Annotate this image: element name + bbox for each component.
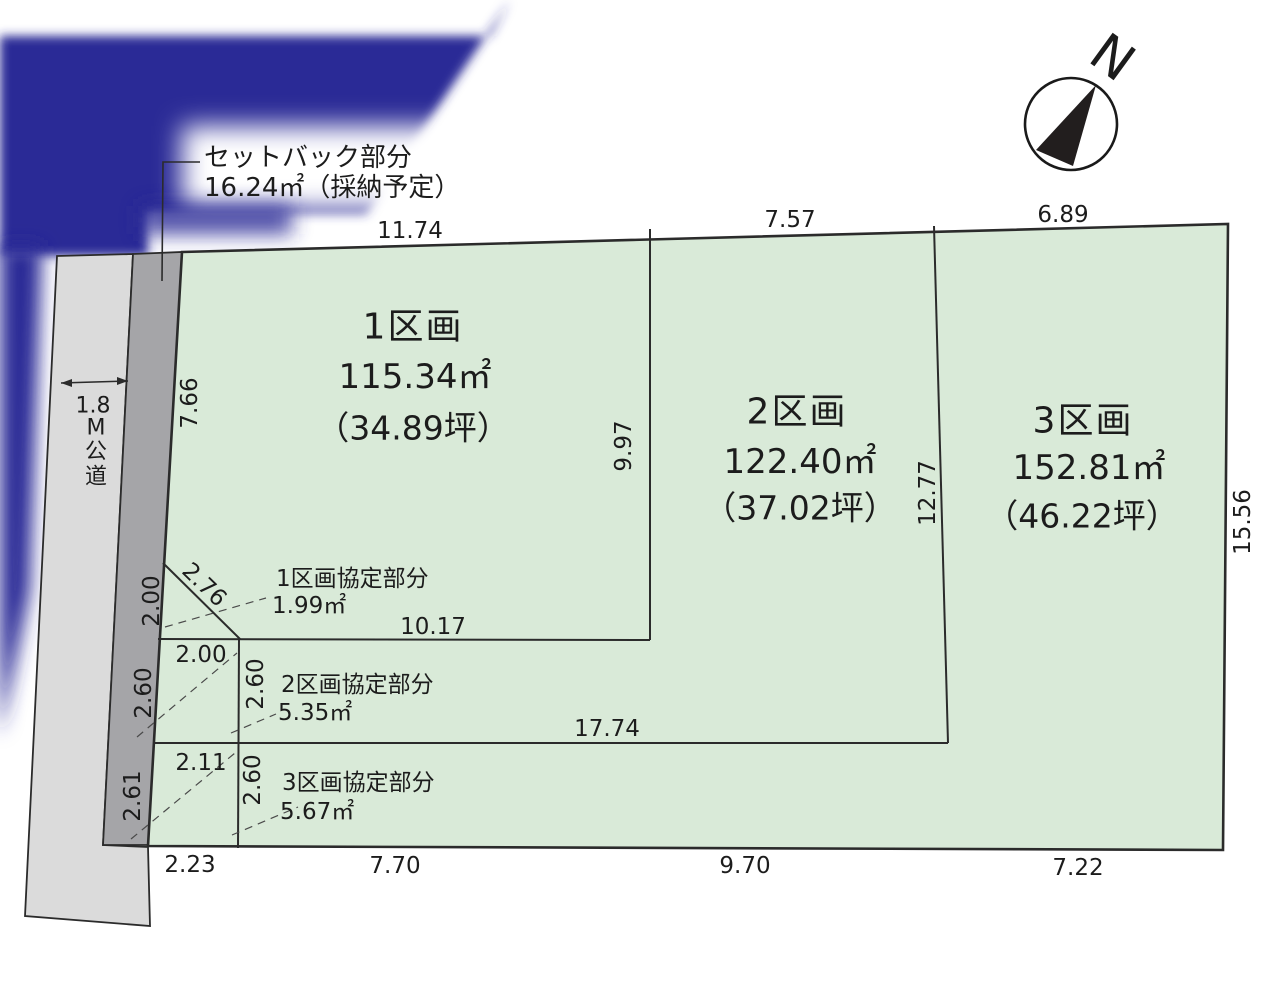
road-name-char-3: 道 [85, 465, 107, 490]
dim-bottom-4: 7.22 [1052, 855, 1103, 881]
road-name-char-1: M [87, 416, 106, 441]
parcel-3-area: 152.81㎡ [1013, 448, 1166, 488]
setback-note-line2: 16.24㎡（採納予定） [204, 173, 460, 203]
dim-strip-2: 2.60 [131, 667, 157, 718]
dim-row1-height: 2.60 [243, 658, 269, 709]
dim-top-3: 6.89 [1037, 202, 1088, 228]
dim-bottom-1: 2.23 [164, 852, 215, 878]
parcel-3-name: 3区画 [1033, 401, 1134, 442]
compass: N [1025, 22, 1145, 170]
dim-top-1: 11.74 [377, 218, 443, 244]
blue-overlay-left-column [0, 246, 42, 736]
setback-note-line1: セットバック部分 [204, 143, 412, 173]
agreement-1-area: 1.99㎡ [272, 593, 346, 619]
compass-needle [1036, 85, 1096, 166]
dim-parcel2-bottom: 17.74 [574, 716, 640, 742]
agreement-1-label: 1区画協定部分 [276, 566, 429, 592]
parcel-3-tsubo: （46.22坪） [985, 497, 1178, 536]
dim-right: 15.56 [1230, 489, 1256, 555]
parcel-2-area: 122.40㎡ [724, 442, 877, 482]
agreement-2-label: 2区画協定部分 [281, 672, 434, 698]
parcel-2-name: 2区画 [747, 392, 848, 433]
compass-north-label: N [1079, 22, 1146, 93]
dim-parcel1-bottom: 10.17 [400, 614, 466, 640]
dim-bottom-3: 9.70 [719, 853, 770, 879]
parcel-1-area: 115.34㎡ [339, 357, 492, 397]
parcel-1-tsubo: （34.89坪） [316, 409, 509, 448]
dim-top-2: 7.57 [764, 207, 815, 233]
dim-strip-3: 2.61 [120, 770, 146, 821]
parcel-2-tsubo: （37.02坪） [703, 489, 896, 528]
agreement-2-area: 5.35㎡ [278, 700, 352, 726]
agreement-3-label: 3区画協定部分 [282, 770, 435, 796]
road-name-char-2: 公 [85, 440, 107, 465]
plot-diagram: N セットバック部分 16.24㎡（採納予定） 11.74 7.57 6.89 … [0, 0, 1280, 994]
dim-strip-1: 2.00 [139, 575, 165, 626]
parcel-1-name: 1区画 [363, 307, 464, 348]
plot-area [148, 224, 1228, 850]
dim-row2-height: 2.60 [240, 754, 266, 805]
dim-row1-width: 2.00 [175, 642, 226, 668]
dim-parcel2-right: 12.77 [915, 460, 941, 526]
agreement-3-area: 5.67㎡ [280, 799, 354, 825]
cell-divider-vertical [238, 639, 239, 848]
dim-parcel1-left: 7.66 [177, 377, 203, 428]
dim-row2-width: 2.11 [175, 750, 226, 776]
dim-bottom-2: 7.70 [369, 853, 420, 879]
dim-parcel1-right: 9.97 [611, 420, 637, 471]
plot-diagram-svg: N セットバック部分 16.24㎡（採納予定） 11.74 7.57 6.89 … [0, 0, 1280, 994]
